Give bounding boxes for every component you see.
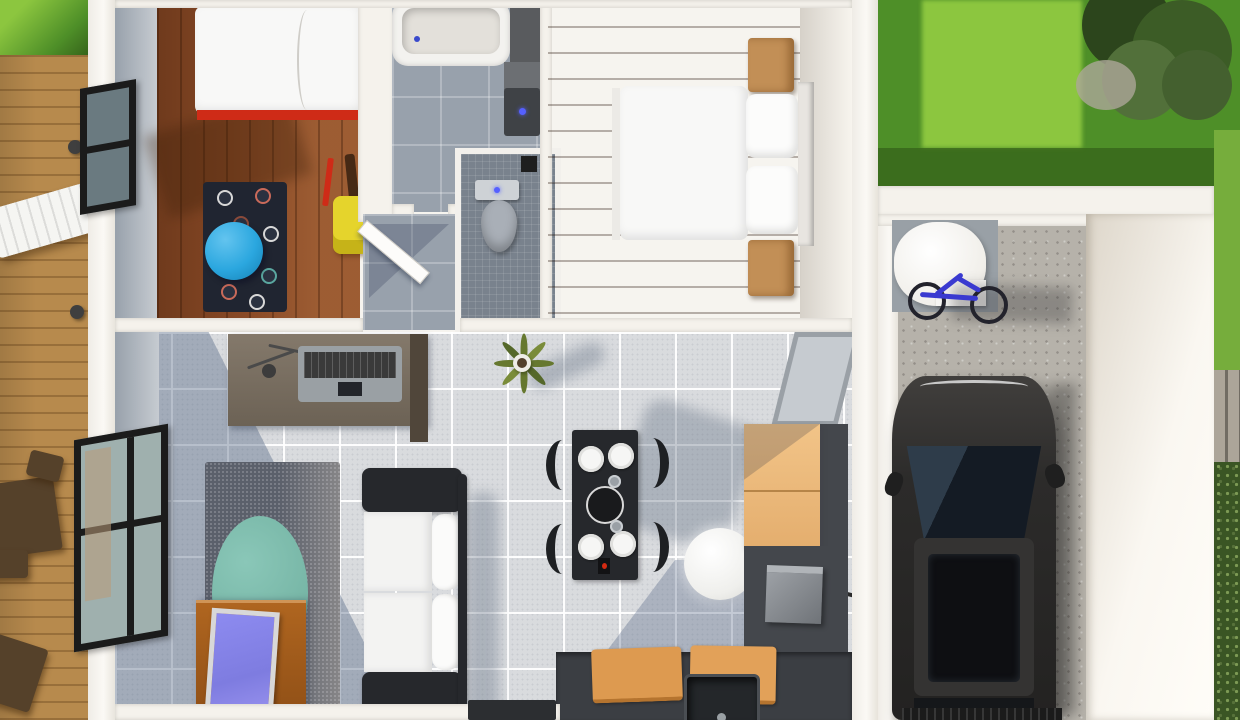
sofa-shadow xyxy=(467,492,499,720)
paver-path xyxy=(1214,370,1240,462)
faucet xyxy=(717,713,726,720)
shrubs xyxy=(1214,462,1240,720)
desk-lamp-head xyxy=(262,364,276,378)
bathtub xyxy=(392,0,510,66)
side-grass xyxy=(1214,130,1240,370)
wc-dark-box xyxy=(521,156,537,172)
plant-soil xyxy=(517,358,527,368)
garage-right-wall xyxy=(1086,214,1214,720)
sofa-back-cushion xyxy=(432,594,460,670)
lawn-shadow xyxy=(878,148,1240,188)
plate xyxy=(578,446,604,472)
dining-table xyxy=(572,430,638,580)
grass-top-left xyxy=(0,0,90,55)
cup xyxy=(610,520,623,533)
rug-dot xyxy=(263,226,279,242)
master-bedroom xyxy=(548,0,852,330)
wall-living-top-left xyxy=(115,318,363,332)
sofa-seat-cushion xyxy=(364,512,432,591)
deck-chair xyxy=(0,550,28,578)
sofa-back-frame xyxy=(458,474,467,708)
hallway xyxy=(363,214,460,330)
plate xyxy=(608,443,634,469)
kids-bedroom xyxy=(115,0,360,320)
sofa xyxy=(362,468,468,714)
rug-dot xyxy=(217,190,233,206)
plate xyxy=(578,534,604,560)
tv-sideboard xyxy=(196,600,306,720)
laptop-keyboard xyxy=(304,352,396,378)
wall-living-top-right xyxy=(460,318,852,332)
sink-led xyxy=(519,108,526,115)
bed-frame-red xyxy=(197,110,365,120)
cabinet-shade xyxy=(744,424,820,548)
rug-dot xyxy=(221,284,237,300)
floorplan-scene xyxy=(0,0,1240,720)
tree-twigs xyxy=(1076,60,1136,110)
deck-chair xyxy=(0,633,49,713)
nightstand-top xyxy=(748,38,794,92)
single-bed xyxy=(195,6,365,114)
bicycle xyxy=(902,272,1042,332)
bed-footboard xyxy=(612,88,620,240)
flush-button xyxy=(494,187,500,193)
rug-dot xyxy=(255,188,271,204)
kitchen-appliance xyxy=(765,565,823,624)
cutting-board xyxy=(591,646,683,703)
center-bowl xyxy=(586,486,624,524)
garage xyxy=(878,214,1214,720)
rug-dot xyxy=(261,268,277,284)
blue-pouf xyxy=(205,222,263,280)
sofa-back-cushion xyxy=(432,514,460,590)
pillow-bottom xyxy=(746,166,798,234)
toilet-tank xyxy=(475,180,519,200)
doormat xyxy=(468,700,556,720)
potted-plant xyxy=(490,332,554,396)
garage-front-wall xyxy=(878,186,1214,216)
tree xyxy=(1062,0,1240,150)
dining-chair xyxy=(636,438,669,488)
car xyxy=(892,376,1056,720)
sofa-armrest-top xyxy=(362,468,462,512)
toilet-bowl xyxy=(481,200,517,252)
desk-side-panel xyxy=(410,334,428,442)
pillow-top xyxy=(746,94,798,158)
bistro-table xyxy=(0,476,63,558)
living-window xyxy=(74,424,168,653)
car-windshield xyxy=(904,446,1044,538)
garage-door-track xyxy=(902,708,1062,720)
plate xyxy=(610,531,636,557)
wall-sink xyxy=(504,88,540,136)
sofa-seat-cushion xyxy=(364,593,432,672)
lawn xyxy=(878,0,1240,188)
car-roof xyxy=(914,538,1034,696)
headboard xyxy=(798,82,814,246)
wall-kids-bath xyxy=(358,0,394,222)
nightstand-bottom xyxy=(748,240,794,296)
wall-top xyxy=(115,0,852,8)
living-room xyxy=(115,332,852,720)
table-candle-red xyxy=(602,563,607,569)
laptop-trackpad xyxy=(338,382,362,396)
kitchen-wall-cabinet xyxy=(744,424,820,548)
duvet-crease xyxy=(297,10,317,110)
exterior-wall-right xyxy=(852,0,878,720)
bathtub-basin xyxy=(402,8,500,54)
desk xyxy=(228,334,428,426)
bathtub-drain xyxy=(414,36,420,42)
deck-pot xyxy=(70,305,84,319)
lawn-sunlit xyxy=(922,0,1082,148)
roof-rail xyxy=(920,380,1028,393)
dining-chair xyxy=(636,522,669,572)
side-yard xyxy=(1214,130,1240,720)
rug-dot xyxy=(249,294,265,310)
kitchen-sink xyxy=(684,674,760,720)
cabinet-divider xyxy=(744,490,820,492)
kids-window xyxy=(80,79,136,215)
laptop xyxy=(298,346,402,402)
car-sunroof xyxy=(928,554,1020,682)
double-bed-duvet xyxy=(620,86,748,240)
